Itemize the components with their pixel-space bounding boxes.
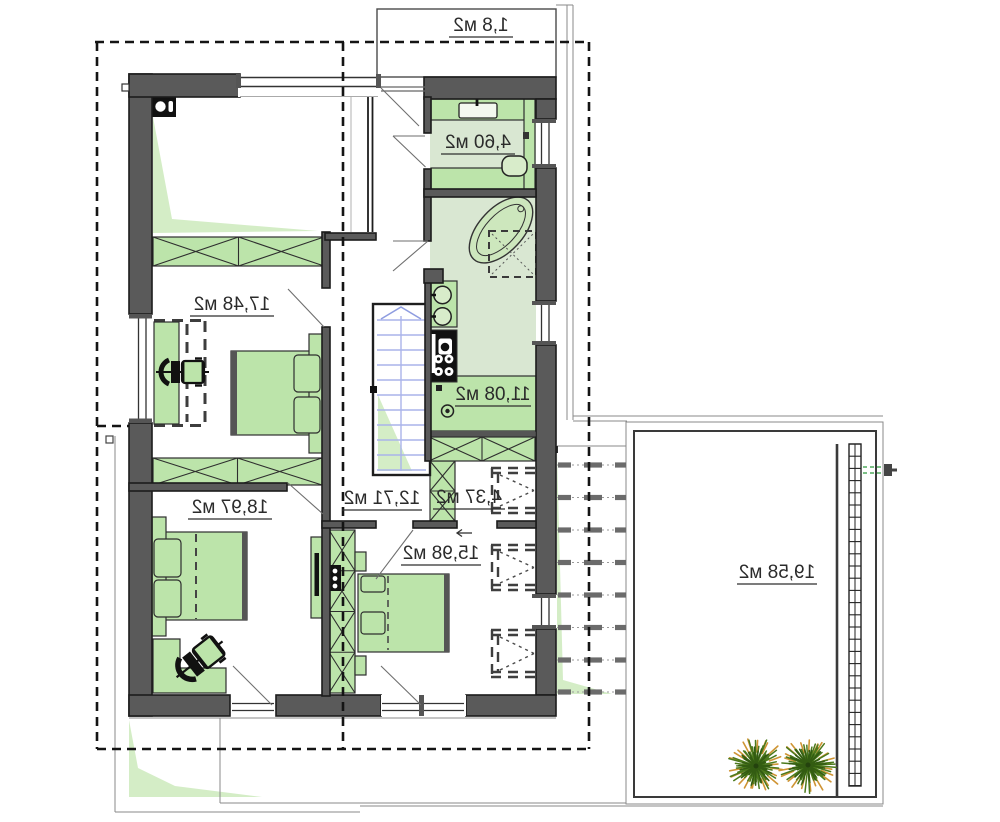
svg-text:11,08 м2: 11,08 м2 [455, 384, 530, 405]
svg-text:12,71 м2: 12,71 м2 [344, 488, 420, 509]
svg-text:15,98 м2: 15,98 м2 [403, 543, 479, 564]
svg-text:1,8 м2: 1,8 м2 [453, 15, 508, 36]
svg-text:4,60 м2: 4,60 м2 [445, 132, 511, 153]
svg-text:18,97 м2: 18,97 м2 [192, 497, 268, 518]
svg-text:4,37 м2: 4,37 м2 [436, 487, 502, 508]
svg-text:17,48 м2: 17,48 м2 [194, 294, 270, 315]
svg-text:19,58 м2: 19,58 м2 [739, 562, 815, 583]
